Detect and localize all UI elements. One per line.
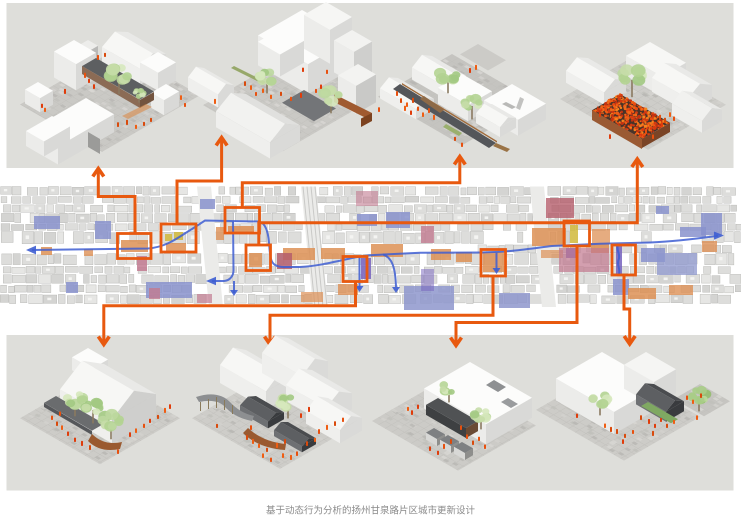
svg-text:基于动态行为分析的扬州甘泉路片区城市更新设计: 基于动态行为分析的扬州甘泉路片区城市更新设计	[266, 505, 476, 517]
